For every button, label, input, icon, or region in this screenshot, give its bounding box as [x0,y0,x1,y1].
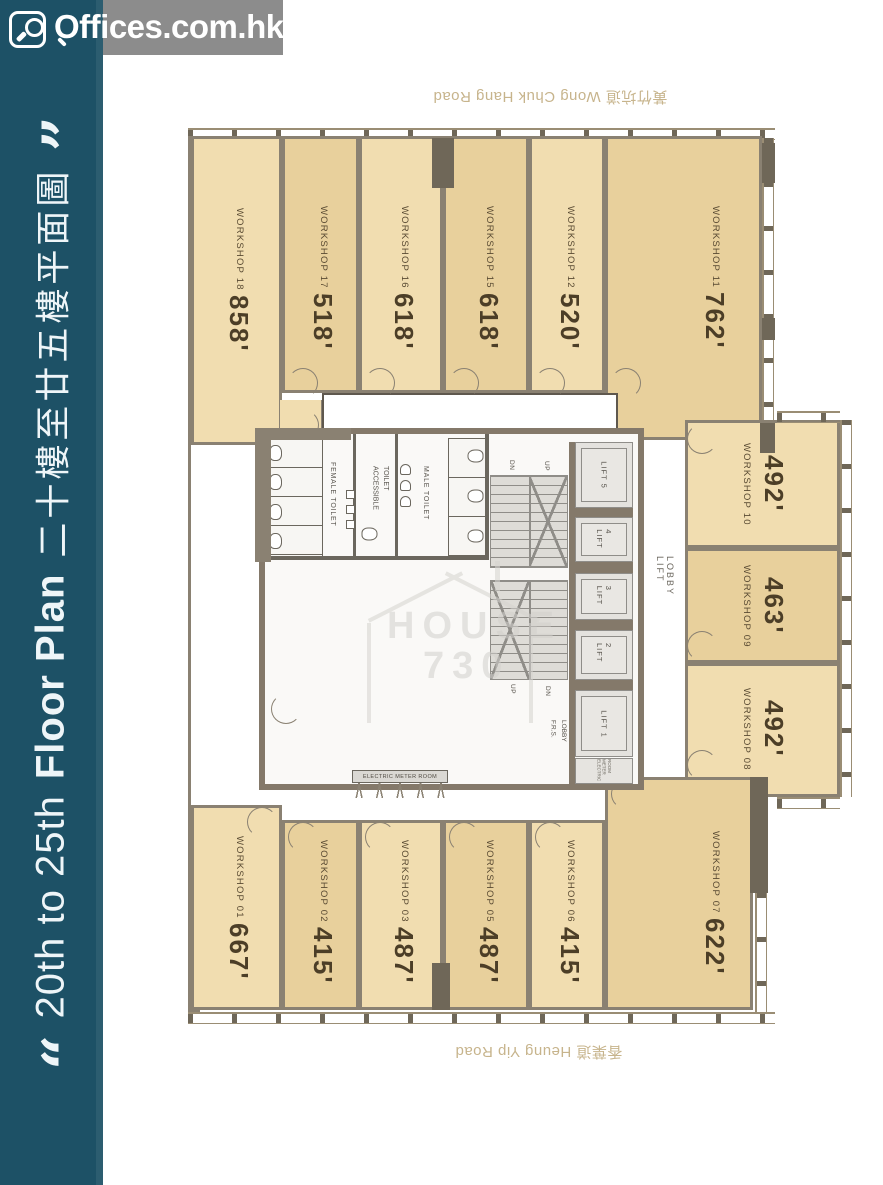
unit-name: WORKSHOP 02 [318,840,329,923]
label-workshop-16: WORKSHOP 16 618' [385,203,419,353]
stair-dn-label: DN [544,686,551,696]
magnifier-handle-icon [16,31,27,42]
brand-logo[interactable]: Offices.com.hk [54,8,284,46]
stair-up-label: UP [509,684,516,694]
core-top-wall [259,428,351,440]
unit-area: 518' [307,293,338,351]
label-workshop-15: WORKSHOP 15 618' [470,203,504,353]
column-block [762,143,775,183]
unit-area: 618' [388,293,419,351]
unit-area: 492' [758,455,789,513]
unit-area: 858' [223,295,254,353]
sidebar-vertical-title: “ 20th to 25th Floor Plan 二十樓至廿五樓平面圖 ” [26,115,77,1069]
door-arc [271,694,301,724]
stair-cross-hatch [491,581,529,679]
label-workshop-02: WORKSHOP 02 415' [304,837,338,987]
accessible-toilet-icon [362,528,378,541]
toilet-icon [468,450,484,463]
electric-meter-room-strip: ELECTRIC METER ROOM [352,770,448,783]
unit-name: WORKSHOP 11 [710,206,721,288]
label-workshop-17: WORKSHOP 17 518' [304,203,338,353]
column-block [750,777,768,893]
sink-icon [346,505,355,514]
door-arc [535,368,565,398]
accessible-toilet-label: ACCESSIBLE TOILET [369,466,390,528]
sidebar: “ 20th to 25th Floor Plan 二十樓至廿五樓平面圖 ” [0,0,103,1185]
lift-1: LIFT 1 [575,690,633,757]
sink-icon [346,490,355,499]
stair-dn-label: DN [508,460,515,470]
lift-3-label: LIFT 3 [595,585,613,608]
unit-name: WORKSHOP 15 [484,206,495,289]
label-workshop-10: WORKSHOP 10 492' [737,424,789,544]
urinal-icon [400,464,411,475]
lift-1-label: LIFT 1 [600,710,609,738]
unit-area: 415' [307,927,338,985]
lift-3: LIFT 3 [575,573,633,620]
window-band-right-upper [762,138,774,450]
door-arc [449,368,479,398]
lift-divider-wall [575,562,633,573]
lift-divider-wall [575,680,633,690]
door-arc [611,368,641,398]
floor-plan-text: Floor Plan [29,573,74,779]
sidebar-edge-highlight [96,0,103,1185]
sink-icon [346,520,355,529]
electric-meter-room-small: ELECTRIC METER ROOM [575,758,633,784]
unit-name: WORKSHOP 05 [484,840,495,923]
floor-plan: FEMALE TOILET ACCESSIBLE TOILET MALE TOI… [185,128,845,1030]
unit-name: WORKSHOP 17 [318,206,329,289]
door-arc [288,368,318,398]
core-block: FEMALE TOILET ACCESSIBLE TOILET MALE TOI… [259,428,644,790]
lift-5-label: LIFT 5 [600,461,609,489]
window-band-right-lower [755,893,767,1012]
floor-plan-chinese-text: 二十樓至廿五樓平面圖 [26,167,77,557]
window-band-bay-right [840,420,852,797]
unit-name: WORKSHOP 09 [741,565,752,648]
stair-cross-hatch [529,476,567,567]
label-workshop-09: WORKSHOP 09 463' [737,551,789,661]
male-toilet-stalls [448,438,485,556]
unit-area: 762' [699,292,730,350]
unit-area: 520' [554,293,585,351]
unit-name: WORKSHOP 10 [741,443,752,526]
label-workshop-05: WORKSHOP 05 487' [470,837,504,987]
label-workshop-18: WORKSHOP 18 858' [220,205,254,355]
lift-2-label: LIFT 2 [595,643,613,667]
unit-area: 667' [223,923,254,981]
column-block [762,318,775,340]
unit-name: WORKSHOP 07 [710,831,721,914]
female-toilet-stalls [265,438,323,556]
window-band-bay-bottom [777,797,840,809]
wall-left-middle [188,445,191,805]
unit-workshop-07 [605,777,753,1010]
unit-area: 618' [473,293,504,351]
door-arc [365,368,395,398]
window-band-bottom [188,1012,775,1024]
courtyard-void [322,393,618,431]
unit-name: WORKSHOP 16 [399,206,410,289]
unit-area: 622' [699,918,730,976]
lift-2: LIFT 2 [575,630,633,680]
toilet-partition-wall [395,434,398,556]
stair-up-label: UP [543,461,550,471]
female-toilet-label: FEMALE TOILET [329,462,336,542]
magnifier-icon [25,18,44,37]
door-arc [687,631,717,661]
unit-name: WORKSHOP 01 [234,836,245,919]
toilet-right-wall [485,434,489,560]
road-label-wong-chuk-hang: 黃竹坑道 Wong Chuk Hang Road [433,87,667,108]
unit-name: WORKSHOP 08 [741,688,752,771]
unit-area: 487' [473,927,504,985]
staircase-upper [490,475,568,568]
label-workshop-06: WORKSHOP 06 415' [551,837,585,987]
toilet-icon [468,490,484,503]
urinal-icon [400,480,411,491]
door-arc [687,424,717,454]
magnifier-logo-box[interactable] [9,11,46,48]
label-workshop-01: WORKSHOP 01 667' [220,833,254,983]
lift-4: LIFT 4 [575,517,633,562]
label-workshop-12: WORKSHOP 12 520' [551,203,585,353]
unit-name: WORKSHOP 06 [565,840,576,923]
lift-divider-wall [575,620,633,630]
frs-lobby-label: F.R.S. LOBBY [547,720,568,754]
lift-lobby-label: LIFT LOBBY [655,556,675,620]
unit-area: 463' [758,577,789,635]
unit-area: 492' [758,700,789,758]
lift-4-label: LIFT 4 [595,529,613,551]
label-workshop-03: WORKSHOP 03 487' [385,837,419,987]
road-label-heung-yip: 香葉道 Heung Yip Road [455,1042,622,1063]
staircase-lower [490,580,568,680]
lift-divider-wall [575,508,633,517]
label-workshop-08: WORKSHOP 08 492' [737,669,789,789]
toilet-bottom-wall [265,556,489,560]
electric-meter-room-small-label: ELECTRIC METER ROOM [596,759,612,783]
electric-meter-room-label: ELECTRIC METER ROOM [363,774,437,780]
window-band-bay-top [777,411,840,423]
core-left-wall [255,428,271,562]
floor-range-text: 20th to 25th [29,795,74,1018]
unit-name: WORKSHOP 18 [234,208,245,291]
urinal-icon [400,496,411,507]
door-arc [687,750,717,780]
unit-name: WORKSHOP 03 [399,840,410,923]
meter-room-door-leaves [352,783,448,798]
label-workshop-07: WORKSHOP 07 622' [696,828,730,978]
label-workshop-11: WORKSHOP 11 762' [696,203,730,353]
lift-5: LIFT 5 [575,442,633,508]
unit-name: WORKSHOP 12 [565,206,576,289]
unit-area: 415' [554,927,585,985]
unit-area: 487' [388,927,419,985]
male-toilet-label: MALE TOILET [422,466,429,538]
toilet-icon [468,530,484,543]
column-block [432,138,454,188]
page: “ 20th to 25th Floor Plan 二十樓至廿五樓平面圖 ” O… [0,0,883,1185]
column-block [432,963,450,1010]
